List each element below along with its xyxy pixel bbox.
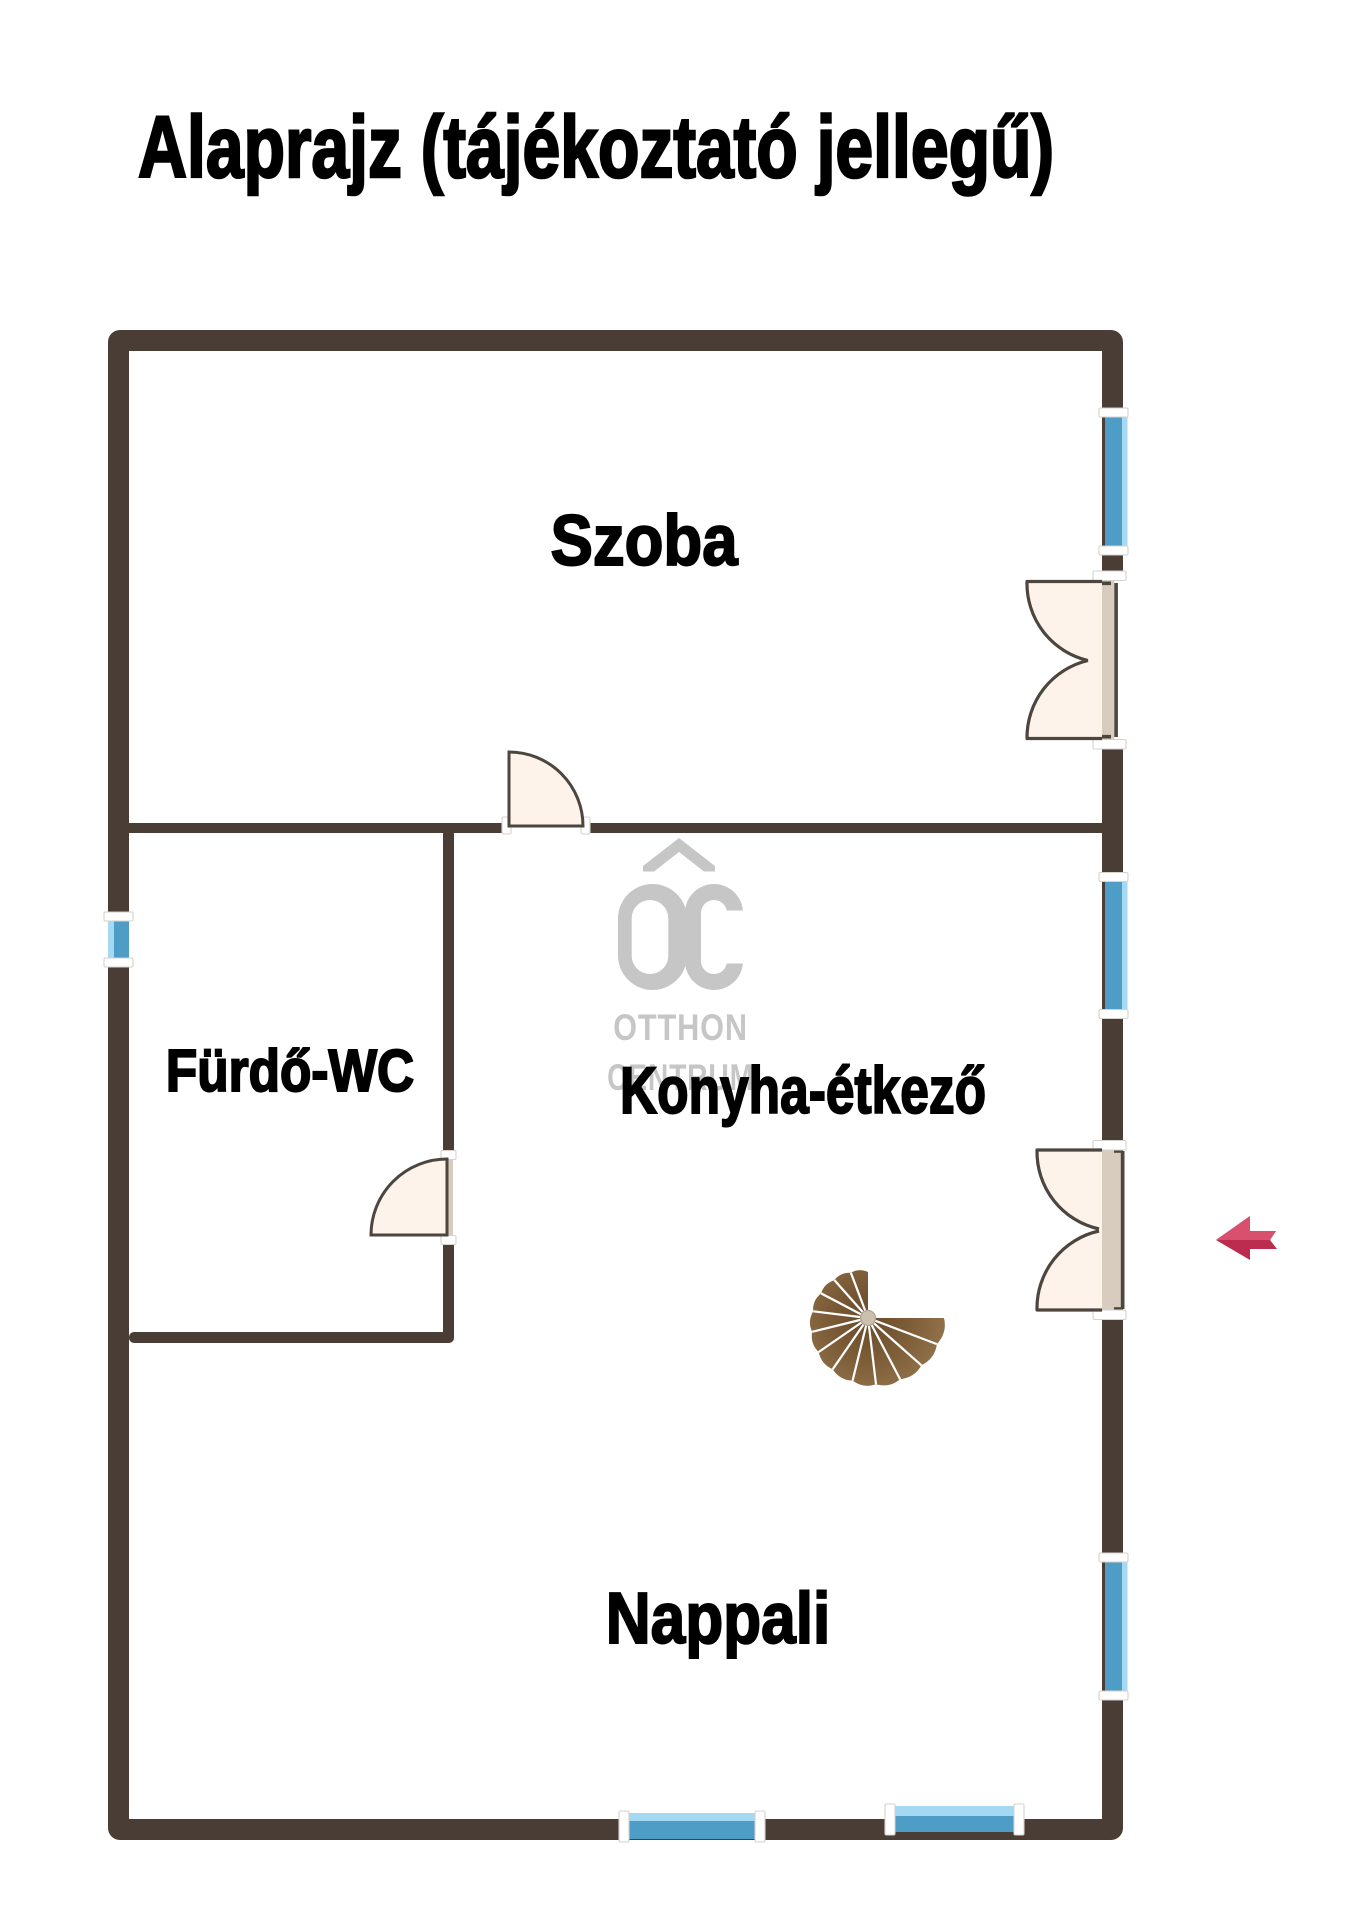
svg-text:Konyha-étkező: Konyha-étkező <box>620 1053 986 1128</box>
svg-text:Szoba: Szoba <box>550 502 738 581</box>
svg-text:Fürdő-WC: Fürdő-WC <box>166 1038 414 1104</box>
svg-text:OTTHON: OTTHON <box>613 1007 748 1049</box>
svg-text:Alaprajz (tájékoztató jellegű): Alaprajz (tájékoztató jellegű) <box>138 98 1054 196</box>
svg-text:Nappali: Nappali <box>606 1579 831 1659</box>
